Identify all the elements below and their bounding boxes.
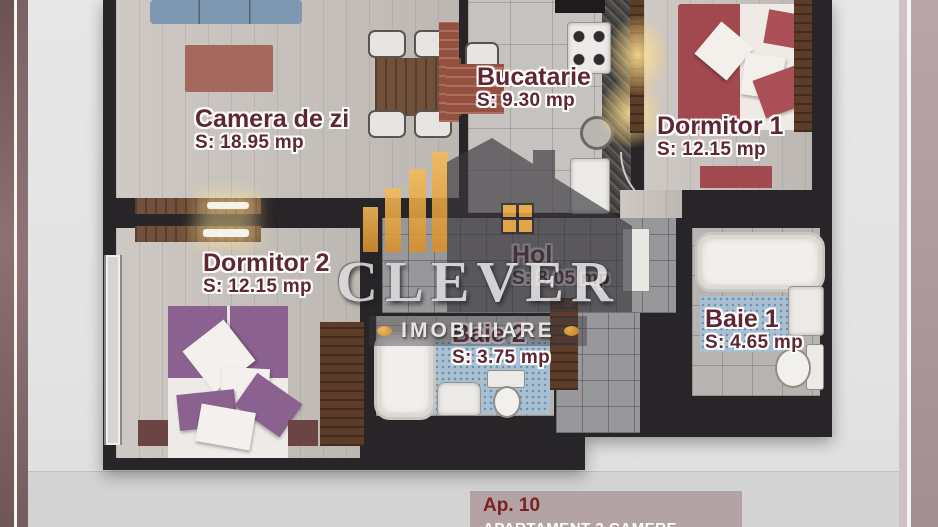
window <box>104 255 122 445</box>
floor-plan: Camera de zi S: 18.95 mp Bucatarie S: 9.… <box>103 0 832 470</box>
room-name: Dormitor 1 <box>657 113 783 140</box>
nightstand <box>138 420 168 446</box>
logo-subtitle-text: IMOBILIARE <box>401 319 555 343</box>
left-border-stripe-inner <box>17 0 28 527</box>
toilet-icon <box>493 386 521 418</box>
apartment-type: APARTAMENT 3 CAMERE <box>483 520 742 527</box>
logo-bar-icon <box>363 207 378 252</box>
toilet-icon <box>775 348 811 388</box>
room-label-bucatarie: Bucatarie S: 9.30 mp <box>477 64 591 112</box>
rug <box>700 166 772 188</box>
logo-dot-icon <box>377 326 392 336</box>
logo-bar-icon <box>432 152 448 252</box>
right-border-stripe <box>911 0 938 527</box>
coffee-table <box>185 45 273 92</box>
logo-window-icon <box>501 203 534 234</box>
room-label-baie-1: Baie 1 S: 4.65 mp <box>705 306 803 354</box>
room-area: S: 12.15 mp <box>203 277 329 298</box>
logo-text: CLEVER <box>313 248 643 315</box>
floorplan-image: Ap. 10 APARTAMENT 3 CAMERE <box>0 0 938 527</box>
washbasin <box>437 382 481 416</box>
room-label-dormitor-1: Dormitor 1 S: 12.15 mp <box>657 113 783 161</box>
room-name: Bucatarie <box>477 64 591 91</box>
room-area: S: 3.75 mp <box>452 348 550 369</box>
logo-dot-icon <box>564 326 579 336</box>
kitchen-hood <box>555 0 605 13</box>
sofa <box>150 0 302 24</box>
wall-light-glow <box>608 15 668 95</box>
room-area: S: 9.30 mp <box>477 91 591 112</box>
room-label-dormitor-2: Dormitor 2 S: 12.15 mp <box>203 250 329 298</box>
logo-subtitle-band: IMOBILIARE <box>369 316 587 346</box>
bottom-band <box>0 471 938 527</box>
room-name: Baie 1 <box>705 306 803 333</box>
wardrobe <box>794 0 812 132</box>
clever-watermark-logo: CLEVER IMOBILIARE <box>313 136 643 351</box>
apartment-number: Ap. 10 <box>483 495 742 517</box>
wall-light <box>203 229 249 237</box>
left-border-stripe <box>0 0 14 527</box>
wall-light <box>207 202 249 209</box>
chair <box>368 110 406 138</box>
nightstand <box>288 420 318 446</box>
chair <box>368 30 406 58</box>
room-name: Camera de zi <box>195 106 349 133</box>
logo-bar-icon <box>409 169 426 252</box>
logo-bar-icon <box>385 188 401 252</box>
room-name: Dormitor 2 <box>203 250 329 277</box>
right-border-stripe-inner <box>899 0 907 527</box>
room-area: S: 12.15 mp <box>657 140 783 161</box>
room-area: S: 4.65 mp <box>705 333 803 354</box>
bathtub <box>695 232 825 292</box>
apartment-info-box: Ap. 10 APARTAMENT 3 CAMERE <box>470 491 742 527</box>
